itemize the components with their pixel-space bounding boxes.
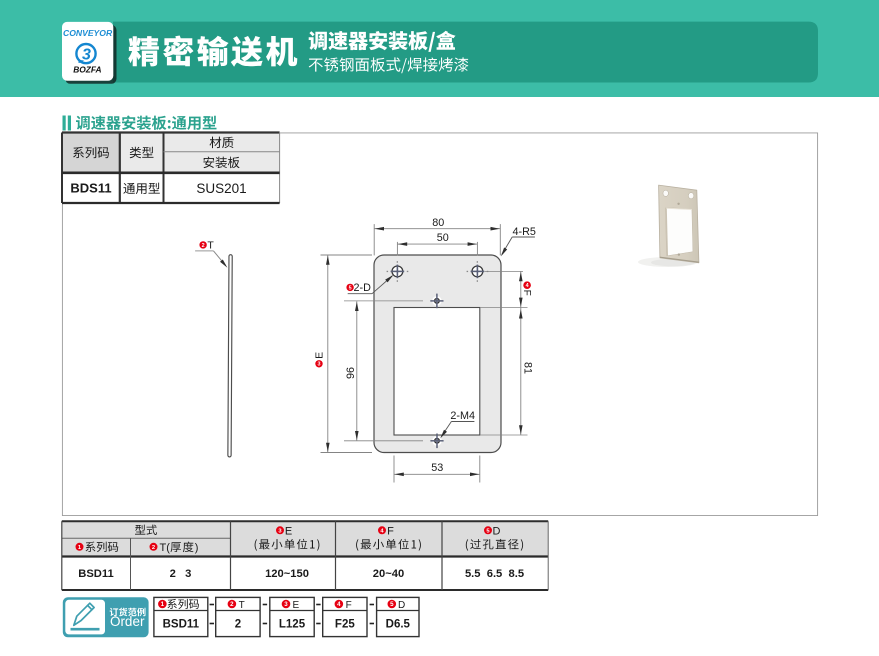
svg-text:80: 80 [432, 217, 444, 229]
svg-text:2: 2 [230, 601, 234, 608]
svg-text:CONVEYOR: CONVEYOR [63, 28, 113, 38]
svg-text:F: F [346, 600, 352, 611]
svg-text:2-D: 2-D [354, 282, 372, 294]
svg-text:5: 5 [349, 285, 352, 291]
svg-text:4: 4 [526, 283, 529, 289]
svg-text:L125: L125 [279, 619, 306, 631]
svg-text:E: E [285, 525, 292, 537]
svg-text:2: 2 [152, 545, 155, 551]
svg-text:1: 1 [161, 601, 165, 608]
svg-text:4: 4 [337, 601, 341, 608]
svg-text:3: 3 [318, 362, 321, 368]
svg-text:E: E [314, 352, 326, 359]
svg-text:20~40: 20~40 [373, 568, 404, 580]
svg-text:F: F [387, 525, 394, 537]
svg-text:120~150: 120~150 [265, 568, 309, 580]
svg-text:5: 5 [390, 601, 394, 608]
svg-text:50: 50 [437, 232, 449, 244]
svg-text:D: D [398, 600, 405, 611]
svg-text:SUS201: SUS201 [196, 181, 246, 196]
svg-text:4-R5: 4-R5 [513, 226, 536, 238]
svg-text:2: 2 [202, 243, 205, 249]
svg-text:BDS11: BDS11 [70, 181, 111, 196]
svg-text:E: E [292, 600, 299, 611]
svg-text:T: T [239, 600, 245, 611]
svg-text:Order: Order [110, 614, 145, 629]
svg-text:3: 3 [284, 601, 288, 608]
svg-text:): ) [195, 542, 199, 554]
svg-text:5.5 6.5 8.5: 5.5 6.5 8.5 [465, 568, 524, 580]
svg-text:53: 53 [431, 462, 443, 474]
svg-text:96: 96 [345, 367, 357, 379]
svg-text:2 3: 2 3 [170, 568, 192, 580]
svg-text:F: F [521, 290, 532, 296]
svg-text:BOZFA: BOZFA [73, 65, 101, 75]
svg-text:F25: F25 [335, 619, 355, 631]
svg-text:2-M4: 2-M4 [450, 410, 475, 422]
svg-text:D6.5: D6.5 [386, 619, 411, 631]
svg-text:81: 81 [521, 362, 533, 374]
svg-text:BSD11: BSD11 [78, 568, 113, 580]
svg-text:T(: T( [160, 542, 171, 554]
svg-text:BSD11: BSD11 [163, 619, 200, 631]
svg-text:T: T [207, 240, 214, 252]
svg-text:2: 2 [235, 619, 241, 631]
svg-text:D: D [493, 525, 501, 537]
